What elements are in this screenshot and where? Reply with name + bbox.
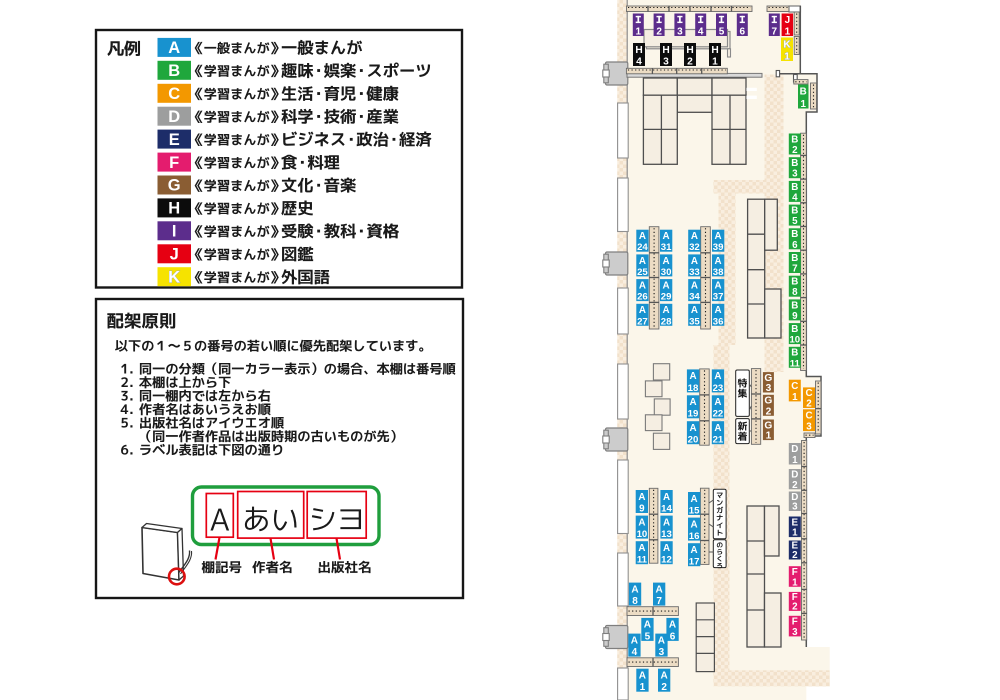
svg-text:3: 3 (806, 422, 812, 433)
svg-text:A: A (660, 671, 667, 682)
svg-text:1: 1 (784, 51, 790, 62)
svg-text:33: 33 (689, 267, 700, 278)
svg-text:36: 36 (713, 316, 724, 327)
svg-text:A: A (715, 280, 722, 291)
svg-text:A: A (663, 517, 670, 528)
svg-text:A: A (714, 423, 721, 434)
svg-text:F: F (792, 567, 798, 578)
svg-text:A: A (663, 543, 670, 554)
svg-text:A: A (663, 492, 670, 503)
svg-text:1: 1 (800, 99, 806, 110)
svg-text:C: C (168, 85, 180, 103)
svg-text:A: A (631, 584, 638, 595)
svg-text:H: H (711, 45, 718, 56)
svg-text:1: 1 (636, 26, 642, 37)
svg-text:B: B (791, 182, 798, 193)
svg-text:I: I (172, 223, 177, 241)
svg-text:1: 1 (785, 26, 791, 37)
svg-text:2: 2 (792, 550, 798, 561)
svg-text:5: 5 (792, 216, 798, 227)
svg-text:E: E (169, 131, 180, 149)
svg-text:4: 4 (636, 56, 642, 67)
svg-text:18: 18 (688, 383, 699, 394)
svg-text:H: H (686, 45, 693, 56)
svg-text:6: 6 (792, 240, 798, 251)
svg-text:16: 16 (689, 531, 700, 542)
svg-text:3: 3 (792, 627, 798, 638)
svg-text:34: 34 (689, 292, 700, 303)
svg-text:9: 9 (639, 503, 645, 514)
svg-text:38: 38 (713, 267, 724, 278)
svg-text:20: 20 (688, 435, 699, 446)
svg-text:29: 29 (661, 292, 672, 303)
svg-text:A: A (714, 371, 721, 382)
svg-text:A: A (639, 280, 646, 291)
svg-text:4: 4 (792, 192, 798, 203)
svg-text:K: K (168, 268, 180, 286)
svg-text:2: 2 (766, 406, 772, 417)
svg-text:31: 31 (661, 242, 672, 253)
svg-text:1: 1 (712, 56, 718, 67)
svg-text:H: H (635, 45, 642, 56)
svg-text:4: 4 (632, 647, 638, 658)
svg-text:13: 13 (661, 529, 672, 540)
svg-text:A: A (638, 517, 645, 528)
svg-text:7: 7 (656, 596, 662, 607)
svg-text:D: D (791, 444, 798, 455)
svg-text:A: A (658, 635, 665, 646)
svg-text:1: 1 (792, 455, 798, 466)
svg-text:25: 25 (637, 267, 648, 278)
svg-text:3: 3 (792, 169, 798, 180)
svg-text:19: 19 (688, 409, 699, 420)
svg-text:7: 7 (772, 26, 778, 37)
svg-text:A: A (168, 39, 180, 57)
svg-text:A: A (638, 543, 645, 554)
svg-text:11: 11 (790, 358, 801, 369)
svg-text:A: A (631, 635, 638, 646)
svg-text:C: C (805, 388, 812, 399)
svg-text:6: 6 (670, 631, 676, 642)
svg-text:30: 30 (661, 267, 672, 278)
svg-text:A: A (639, 671, 646, 682)
svg-text:5: 5 (645, 631, 651, 642)
svg-text:G: G (764, 420, 772, 431)
svg-text:A: A (691, 545, 698, 556)
svg-text:4: 4 (698, 26, 704, 37)
svg-text:2: 2 (792, 602, 798, 613)
svg-text:10: 10 (637, 529, 648, 540)
svg-text:F: F (792, 617, 798, 628)
svg-text:28: 28 (661, 316, 672, 327)
svg-text:A: A (691, 231, 698, 242)
svg-text:A: A (691, 256, 698, 267)
svg-text:1: 1 (792, 392, 798, 403)
svg-text:F: F (169, 154, 179, 172)
svg-text:10: 10 (789, 335, 800, 346)
svg-text:H: H (168, 200, 180, 218)
svg-text:27: 27 (637, 316, 648, 327)
svg-text:B: B (800, 87, 807, 98)
svg-text:A: A (691, 280, 698, 291)
svg-text:B: B (791, 300, 798, 311)
svg-text:39: 39 (713, 242, 724, 253)
svg-text:14: 14 (661, 503, 672, 514)
svg-text:B: B (791, 206, 798, 217)
svg-text:1: 1 (792, 577, 798, 588)
svg-text:D: D (168, 108, 180, 126)
svg-text:12: 12 (661, 555, 672, 566)
svg-text:5: 5 (719, 26, 725, 37)
svg-text:1: 1 (792, 528, 798, 539)
svg-text:A: A (663, 256, 670, 267)
svg-text:A: A (691, 305, 698, 316)
svg-text:24: 24 (637, 242, 648, 253)
svg-text:A: A (714, 397, 721, 408)
svg-text:15: 15 (689, 505, 700, 516)
svg-text:1: 1 (766, 431, 772, 442)
svg-text:23: 23 (713, 383, 724, 394)
svg-text:2: 2 (661, 682, 667, 693)
svg-text:3: 3 (663, 56, 669, 67)
svg-text:A: A (669, 620, 676, 631)
svg-text:8: 8 (632, 596, 638, 607)
svg-text:G: G (764, 396, 772, 407)
svg-text:A: A (715, 256, 722, 267)
svg-text:8: 8 (792, 287, 798, 298)
svg-text:B: B (791, 324, 798, 335)
svg-text:6: 6 (740, 26, 746, 37)
svg-text:G: G (168, 177, 181, 195)
svg-text:2: 2 (806, 399, 812, 410)
svg-text:26: 26 (637, 292, 648, 303)
svg-text:A: A (691, 494, 698, 505)
svg-text:A: A (663, 305, 670, 316)
svg-text:17: 17 (689, 557, 700, 568)
svg-text:A: A (689, 397, 696, 408)
svg-text:A: A (689, 423, 696, 434)
svg-text:22: 22 (713, 409, 724, 420)
svg-text:A: A (715, 231, 722, 242)
svg-text:32: 32 (689, 242, 700, 253)
svg-text:A: A (639, 231, 646, 242)
svg-text:3: 3 (677, 26, 683, 37)
svg-text:11: 11 (637, 555, 648, 566)
svg-text:A: A (663, 231, 670, 242)
svg-text:A: A (689, 371, 696, 382)
svg-text:B: B (791, 158, 798, 169)
svg-text:21: 21 (713, 435, 724, 446)
svg-text:B: B (791, 253, 798, 264)
svg-text:2: 2 (792, 145, 798, 156)
svg-text:35: 35 (689, 316, 700, 327)
svg-text:B: B (791, 229, 798, 240)
svg-text:A: A (691, 519, 698, 530)
svg-text:3: 3 (659, 647, 665, 658)
svg-text:A: A (715, 305, 722, 316)
svg-text:3: 3 (766, 383, 772, 394)
svg-text:J: J (170, 246, 179, 264)
svg-text:B: B (791, 348, 798, 359)
svg-text:A: A (663, 280, 670, 291)
svg-text:C: C (791, 381, 798, 392)
svg-text:H: H (662, 45, 669, 56)
svg-text:9: 9 (792, 311, 798, 322)
svg-text:37: 37 (713, 292, 724, 303)
svg-text:A: A (638, 492, 645, 503)
svg-text:C: C (805, 411, 812, 422)
svg-text:2: 2 (656, 26, 662, 37)
svg-text:E: E (792, 517, 799, 528)
svg-text:K: K (783, 40, 791, 51)
svg-text:7: 7 (792, 264, 798, 275)
svg-text:3: 3 (792, 502, 798, 513)
svg-text:B: B (168, 62, 180, 80)
svg-text:A: A (644, 620, 651, 631)
svg-text:A: A (639, 256, 646, 267)
svg-text:A: A (655, 584, 662, 595)
svg-text:B: B (791, 277, 798, 288)
svg-text:2: 2 (687, 56, 693, 67)
svg-text:J: J (785, 15, 791, 26)
svg-text:2: 2 (792, 480, 798, 491)
svg-text:1: 1 (640, 682, 646, 693)
svg-text:B: B (791, 134, 798, 145)
svg-text:A: A (639, 305, 646, 316)
